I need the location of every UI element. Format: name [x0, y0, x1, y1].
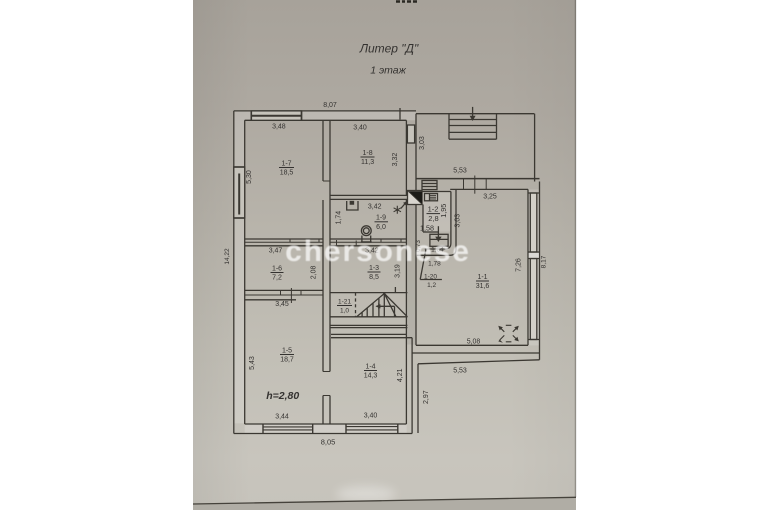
svg-text:7,26: 7,26 — [516, 258, 523, 272]
svg-text:18,5: 18,5 — [280, 170, 294, 177]
svg-text:6,0: 6,0 — [376, 224, 386, 231]
svg-text:3,03: 3,03 — [455, 214, 462, 228]
svg-text:31,6: 31,6 — [476, 283, 490, 290]
svg-text:1,0: 1,0 — [340, 308, 349, 315]
svg-text:14,3: 14,3 — [364, 373, 378, 380]
svg-text:8,5: 8,5 — [369, 274, 379, 281]
svg-text:1 этаж: 1 этаж — [370, 65, 406, 77]
svg-text:1-8: 1-8 — [363, 150, 373, 157]
svg-text:Литер "Д": Литер "Д" — [359, 42, 419, 56]
svg-text:2,97: 2,97 — [423, 390, 430, 404]
svg-text:1,95: 1,95 — [439, 204, 448, 218]
svg-text:1-20: 1-20 — [424, 273, 437, 280]
svg-text:5,53: 5,53 — [453, 168, 467, 175]
svg-text:2,8: 2,8 — [428, 214, 438, 223]
svg-text:3,03: 3,03 — [419, 136, 426, 150]
svg-text:5,30: 5,30 — [246, 170, 253, 184]
svg-text:3,42: 3,42 — [368, 204, 382, 211]
svg-text:3,32: 3,32 — [392, 153, 399, 167]
svg-text:3,45: 3,45 — [275, 301, 289, 308]
svg-text:1-4: 1-4 — [365, 364, 375, 371]
svg-text:1,74: 1,74 — [335, 211, 342, 225]
svg-text:8,05: 8,05 — [321, 438, 336, 447]
svg-text:1-2: 1-2 — [428, 205, 439, 214]
svg-text:3,40: 3,40 — [353, 125, 367, 132]
svg-text:5,53: 5,53 — [453, 368, 467, 375]
svg-text:1,2: 1,2 — [427, 282, 436, 289]
svg-text:4,21: 4,21 — [397, 368, 404, 382]
svg-text:1-9: 1-9 — [376, 215, 386, 222]
svg-text:3,48: 3,48 — [272, 123, 286, 130]
svg-text:5,08: 5,08 — [467, 339, 481, 346]
svg-text:1-5: 1-5 — [282, 348, 292, 355]
svg-text:8,17: 8,17 — [541, 255, 548, 268]
svg-text:1-21: 1-21 — [338, 299, 351, 306]
svg-text:7,2: 7,2 — [272, 275, 282, 282]
svg-text:1-1: 1-1 — [477, 274, 487, 281]
svg-text:14,22: 14,22 — [224, 248, 231, 265]
svg-text:h=2,80: h=2,80 — [266, 390, 299, 402]
svg-text:3,25: 3,25 — [483, 194, 497, 201]
svg-text:11,3: 11,3 — [361, 159, 374, 166]
svg-text:1,58: 1,58 — [420, 224, 434, 233]
svg-text:3,44: 3,44 — [275, 414, 289, 421]
svg-text:5,43: 5,43 — [249, 356, 256, 370]
svg-text:3,40: 3,40 — [364, 413, 378, 420]
svg-text:18,7: 18,7 — [280, 357, 294, 364]
svg-text:1-7: 1-7 — [281, 161, 291, 168]
svg-text:8,07: 8,07 — [323, 102, 337, 109]
